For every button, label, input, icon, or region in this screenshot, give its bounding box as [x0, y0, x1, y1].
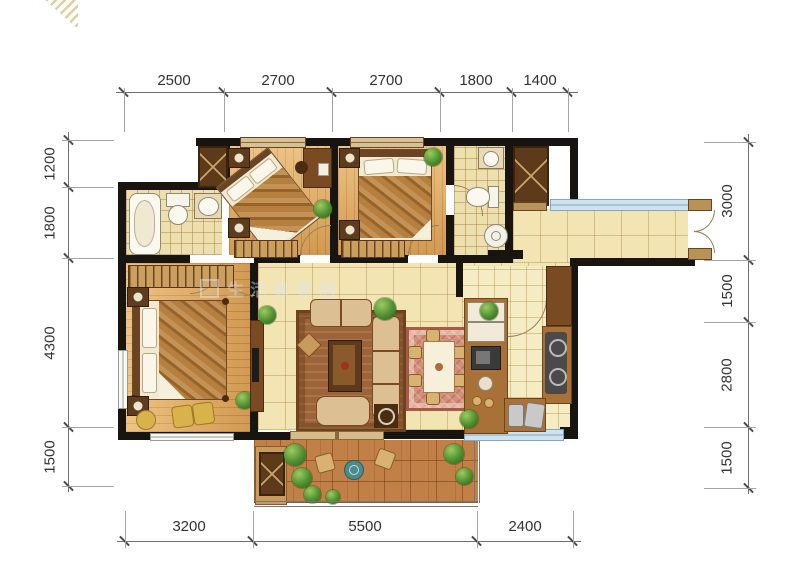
dining-chair [408, 346, 422, 359]
sink-basin [508, 404, 524, 427]
entry-door-swing-lower [694, 231, 715, 253]
floor-plan-canvas: 2500 2700 2700 1800 1400 1200 1800 4300 … [0, 0, 800, 585]
plant [314, 200, 332, 218]
bedroom2-nightstand [339, 220, 360, 240]
dim-bottom-2: 2400 [477, 518, 573, 536]
side-table-ring [378, 408, 395, 425]
coffee-table [328, 340, 362, 392]
dim-top-2: 2700 [332, 72, 440, 90]
bed-pillow [142, 308, 157, 348]
dim-ext [224, 88, 225, 132]
dim-ext [332, 88, 333, 132]
dim-right-2: 2800 [719, 323, 737, 428]
plant [292, 468, 312, 488]
wall-east-upper [570, 138, 578, 208]
tv [252, 348, 259, 382]
lamp-icon [234, 153, 245, 164]
bed-sheet-fold [359, 176, 431, 238]
bed-headboard [359, 150, 431, 157]
table-centerpiece [435, 363, 443, 371]
bathroom2-sink-counter [478, 147, 504, 169]
bed-pillow [397, 158, 428, 175]
bedroom2-window [350, 137, 424, 148]
dim-ext [62, 187, 114, 188]
bedroom2-wardrobe [341, 240, 405, 258]
shower-closet [513, 146, 549, 206]
bedroom2-bed [358, 149, 432, 241]
side-table [374, 404, 398, 428]
balcony-railing-right [474, 441, 480, 503]
cooktop [545, 332, 567, 394]
corridor-floor [513, 209, 688, 263]
master-stool [136, 410, 156, 430]
balcony-sliding-door [290, 431, 384, 440]
wall-kitchen-west-stub [456, 263, 463, 297]
wall-bedsouth-1 [118, 255, 190, 263]
dining-table [423, 341, 455, 393]
dim-ext [573, 511, 574, 548]
washer-drum [491, 231, 501, 241]
dim-line-top [116, 92, 578, 93]
bathroom1-sink [194, 193, 222, 219]
wall-south-balcony-left [246, 432, 290, 440]
master-south-window [150, 433, 234, 441]
balcony-railing-bottom [254, 501, 478, 507]
burner [549, 368, 567, 386]
kitchen-tall-cabinet [546, 266, 572, 326]
washing-machine [484, 224, 508, 248]
shower-south-wall [513, 202, 547, 211]
armchair-bottom [316, 396, 370, 426]
balcony-storage-box [259, 452, 285, 496]
microwave-window [476, 351, 490, 364]
bedroom1-desk [303, 148, 332, 188]
kitchen-jar [484, 398, 494, 408]
dim-line-bottom [117, 541, 581, 542]
dim-ext [512, 88, 513, 132]
desk-chair [295, 161, 308, 174]
bedroom1-window [240, 137, 306, 148]
sofa-top [310, 299, 372, 327]
bed-post [222, 395, 229, 402]
bed-post [222, 298, 229, 305]
bedroom2-nightstand [339, 148, 360, 168]
dim-bottom-1: 5500 [253, 518, 477, 536]
entry-door-swing-upper [694, 210, 715, 232]
master-nightstand [127, 287, 149, 307]
dim-right-0: 3000 [719, 142, 737, 260]
bench-cushion [171, 404, 195, 429]
bed-headboard [133, 301, 140, 399]
dining-chair [426, 392, 440, 405]
dim-right-3: 1500 [719, 428, 737, 489]
plant [460, 410, 478, 428]
plant [456, 468, 473, 485]
toilet-bowl [168, 205, 188, 225]
lamp-icon [133, 292, 144, 303]
dim-ext [62, 427, 114, 428]
plant [258, 306, 276, 324]
dim-top-1: 2700 [224, 72, 332, 90]
toilet2-bowl [466, 187, 490, 207]
plant [374, 298, 396, 320]
dim-ext [124, 88, 125, 132]
bed-pillow [363, 158, 394, 176]
balcony-table-ring [349, 465, 359, 475]
sink-basin [523, 402, 545, 429]
dining-chair [408, 374, 422, 387]
dim-right-1: 1500 [719, 260, 737, 322]
dim-left-0: 1200 [42, 141, 60, 188]
master-bed [132, 300, 227, 400]
plant [444, 444, 464, 464]
master-wardrobe [128, 265, 234, 288]
master-bench [171, 401, 215, 427]
corridor-window [550, 199, 690, 211]
plant [284, 444, 306, 466]
bedroom1-nightstand [228, 218, 250, 238]
dim-line-right [748, 134, 749, 494]
bedroom1-wardrobe [234, 240, 298, 258]
dim-ext [440, 88, 441, 132]
dim-left-3: 1500 [42, 428, 60, 487]
wall-bedsouth-4 [438, 255, 513, 263]
dim-top-0: 2500 [124, 72, 224, 90]
corner-logo [45, 0, 78, 29]
bathtub [129, 193, 161, 255]
dim-ext [62, 486, 114, 487]
dim-left-2: 4300 [42, 259, 60, 428]
dim-bottom-0: 3200 [125, 518, 253, 536]
bed-pillow [142, 353, 157, 393]
sink-basin [198, 197, 219, 216]
lamp-icon [234, 223, 245, 234]
dim-ext [62, 140, 114, 141]
dim-ext [62, 258, 114, 259]
sink-basin [483, 151, 499, 167]
sofa-right [372, 316, 400, 418]
kitchen-round-sink [478, 376, 493, 391]
table-decor [341, 362, 349, 370]
dim-top-3: 1800 [440, 72, 512, 90]
plant [424, 148, 442, 166]
dim-ext [568, 88, 569, 132]
bedroom1-nightstand [228, 148, 250, 168]
kitchen-bottom-counter [504, 398, 546, 432]
bench-cushion [192, 401, 216, 426]
balcony-table [344, 460, 364, 480]
plant [480, 302, 498, 320]
kitchen-jar [472, 396, 482, 406]
burner [549, 339, 567, 357]
bed-sheet-fold [159, 301, 226, 399]
desk-paper [318, 163, 329, 176]
wall-corridor-south [570, 258, 695, 266]
wall-bath2-west-upper [446, 138, 454, 185]
dim-left-1: 1800 [42, 188, 60, 259]
wall-bath2-east [505, 138, 513, 262]
lamp-icon [344, 225, 355, 236]
dim-top-4: 1400 [512, 72, 568, 90]
bathtub-basin [134, 200, 155, 247]
lamp-icon [344, 153, 355, 164]
microwave [471, 346, 501, 370]
